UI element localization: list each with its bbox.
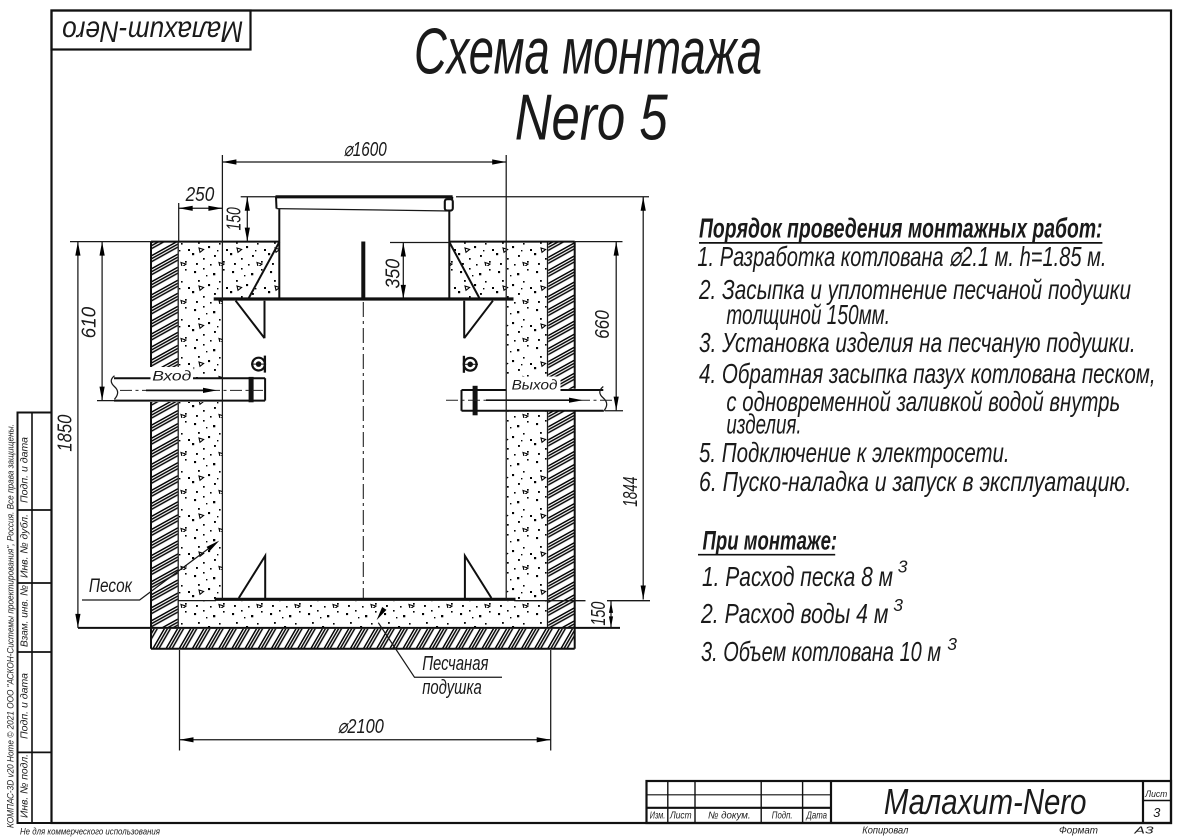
svg-text:1844: 1844 <box>620 477 642 507</box>
svg-text:Копировал: Копировал <box>862 826 908 837</box>
svg-text:Порядок проведения монтажных р: Порядок проведения монтажных работ: <box>699 213 1103 244</box>
svg-text:Подп. и дата: Подп. и дата <box>19 437 31 503</box>
svg-text:3: 3 <box>1153 805 1161 820</box>
svg-text:Nero 5: Nero 5 <box>515 81 669 154</box>
svg-text:подушка: подушка <box>422 677 482 699</box>
svg-text:Формат: Формат <box>1059 826 1098 837</box>
svg-text:610: 610 <box>78 307 100 339</box>
svg-text:Дата: Дата <box>806 810 828 821</box>
svg-text:Лист: Лист <box>1144 789 1167 800</box>
svg-text:толщиной 150мм.: толщиной 150мм. <box>726 299 890 330</box>
svg-text:1. Расход песка 8 м: 1. Расход песка 8 м <box>702 561 893 592</box>
svg-text:1850: 1850 <box>55 415 77 452</box>
svg-text:1. Разработка котлована ⌀2.1 м: 1. Разработка котлована ⌀2.1 м. h=1.85 м… <box>697 241 1106 272</box>
svg-text:Малахит-Nero: Малахит-Nero <box>884 781 1087 822</box>
svg-text:Малахит-Nero: Малахит-Nero <box>62 15 243 48</box>
svg-text:Не для коммерческого использов: Не для коммерческого использования <box>20 826 160 837</box>
svg-text:6. Пуско-наладка и запуск в эк: 6. Пуско-наладка и запуск в эксплуатацию… <box>699 466 1131 497</box>
svg-text:⌀2100: ⌀2100 <box>338 716 384 738</box>
svg-text:Песок: Песок <box>89 576 133 597</box>
svg-text:При монтаже:: При монтаже: <box>703 526 838 556</box>
svg-text:А3: А3 <box>1133 826 1154 837</box>
svg-text:изделия.: изделия. <box>726 409 801 440</box>
svg-text:4. Обратная засыпка пазух котл: 4. Обратная засыпка пазух котлована песк… <box>699 358 1156 389</box>
svg-text:Схема монтажа: Схема монтажа <box>414 15 762 88</box>
svg-text:Инв. № подл.: Инв. № подл. <box>19 754 31 818</box>
svg-text:Взам. инв. №: Взам. инв. № <box>19 585 31 647</box>
svg-text:Вход: Вход <box>152 368 191 384</box>
svg-text:350: 350 <box>383 259 405 289</box>
svg-text:⌀1600: ⌀1600 <box>344 139 387 161</box>
svg-text:3: 3 <box>947 634 957 654</box>
svg-text:3. Установка изделия на песчан: 3. Установка изделия на песчаную подушки… <box>699 327 1136 358</box>
svg-text:Лист: Лист <box>669 810 691 821</box>
svg-text:5. Подключение к электросети.: 5. Подключение к электросети. <box>699 437 1010 468</box>
svg-text:КОМПАС-3D v20 Home © 2021 ООО: КОМПАС-3D v20 Home © 2021 ООО "АСКОН-Сис… <box>6 424 16 828</box>
svg-text:3: 3 <box>898 557 908 577</box>
svg-text:250: 250 <box>185 184 215 206</box>
svg-text:Выход: Выход <box>512 377 558 393</box>
svg-text:Песчаная: Песчаная <box>422 653 489 675</box>
svg-text:Изм.: Изм. <box>650 810 666 821</box>
svg-text:Подп. и дата: Подп. и дата <box>19 673 31 739</box>
svg-text:3: 3 <box>893 595 903 615</box>
svg-text:660: 660 <box>592 310 614 339</box>
svg-text:Подп.: Подп. <box>772 810 793 821</box>
svg-text:Инв. № дубл.: Инв. № дубл. <box>19 514 31 578</box>
svg-text:150: 150 <box>588 602 610 626</box>
svg-text:3. Объем котлована 10 м: 3. Объем котлована 10 м <box>701 636 941 667</box>
svg-text:№ докум.: № докум. <box>708 810 751 821</box>
svg-text:150: 150 <box>223 207 245 230</box>
svg-text:2. Расход воды 4 м: 2. Расход воды 4 м <box>700 598 888 629</box>
